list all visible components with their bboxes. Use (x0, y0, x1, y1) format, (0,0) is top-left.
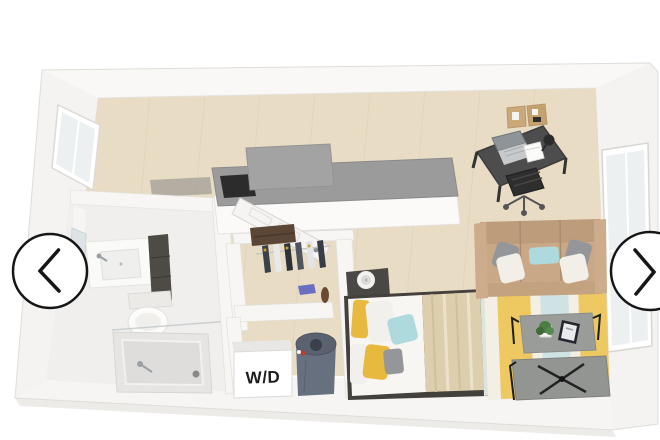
image-carousel: W/D (0, 0, 660, 440)
laundry-nook: W/D (232, 333, 336, 398)
living-area (474, 219, 610, 400)
upper-cabinet-block (246, 144, 334, 190)
striped-blanket (422, 292, 484, 392)
media-table (510, 356, 610, 400)
sofa (474, 219, 607, 299)
coffee-table-top (520, 313, 596, 353)
notebook (524, 142, 544, 162)
water-heater (296, 333, 336, 396)
sofa-back (480, 219, 601, 245)
sofa-armrest-left (474, 222, 488, 299)
tablet (558, 320, 580, 344)
pinned-paper (512, 112, 519, 120)
floorplan-render: W/D (0, 0, 660, 440)
entry-threshold (150, 177, 212, 197)
prev-button[interactable] (13, 234, 87, 308)
washer-dryer-box: W/D (232, 340, 292, 398)
shower-drain (193, 371, 200, 378)
small-bag (321, 287, 329, 303)
pillow-gray (383, 348, 405, 375)
sofa-armrest-right (594, 219, 607, 294)
washer-dryer-label: W/D (245, 367, 280, 387)
coffee-table (512, 313, 600, 353)
toilet (128, 291, 172, 337)
vanity-sink (86, 238, 154, 288)
